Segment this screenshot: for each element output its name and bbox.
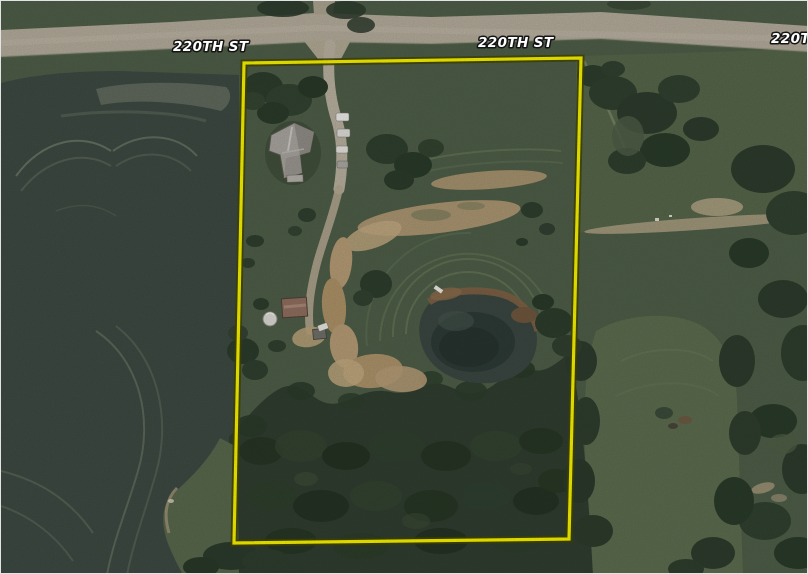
image-grain (1, 1, 808, 574)
satellite-scene: 220TH ST 220TH ST 220TH ST (1, 1, 808, 574)
road-label-220th-st-left: 220TH ST (173, 39, 250, 55)
road-label-220th-st-center: 220TH ST (478, 35, 555, 51)
aerial-map-image: 220TH ST 220TH ST 220TH ST (0, 0, 808, 574)
road-label-220th-st-right: 220TH ST (771, 31, 808, 47)
